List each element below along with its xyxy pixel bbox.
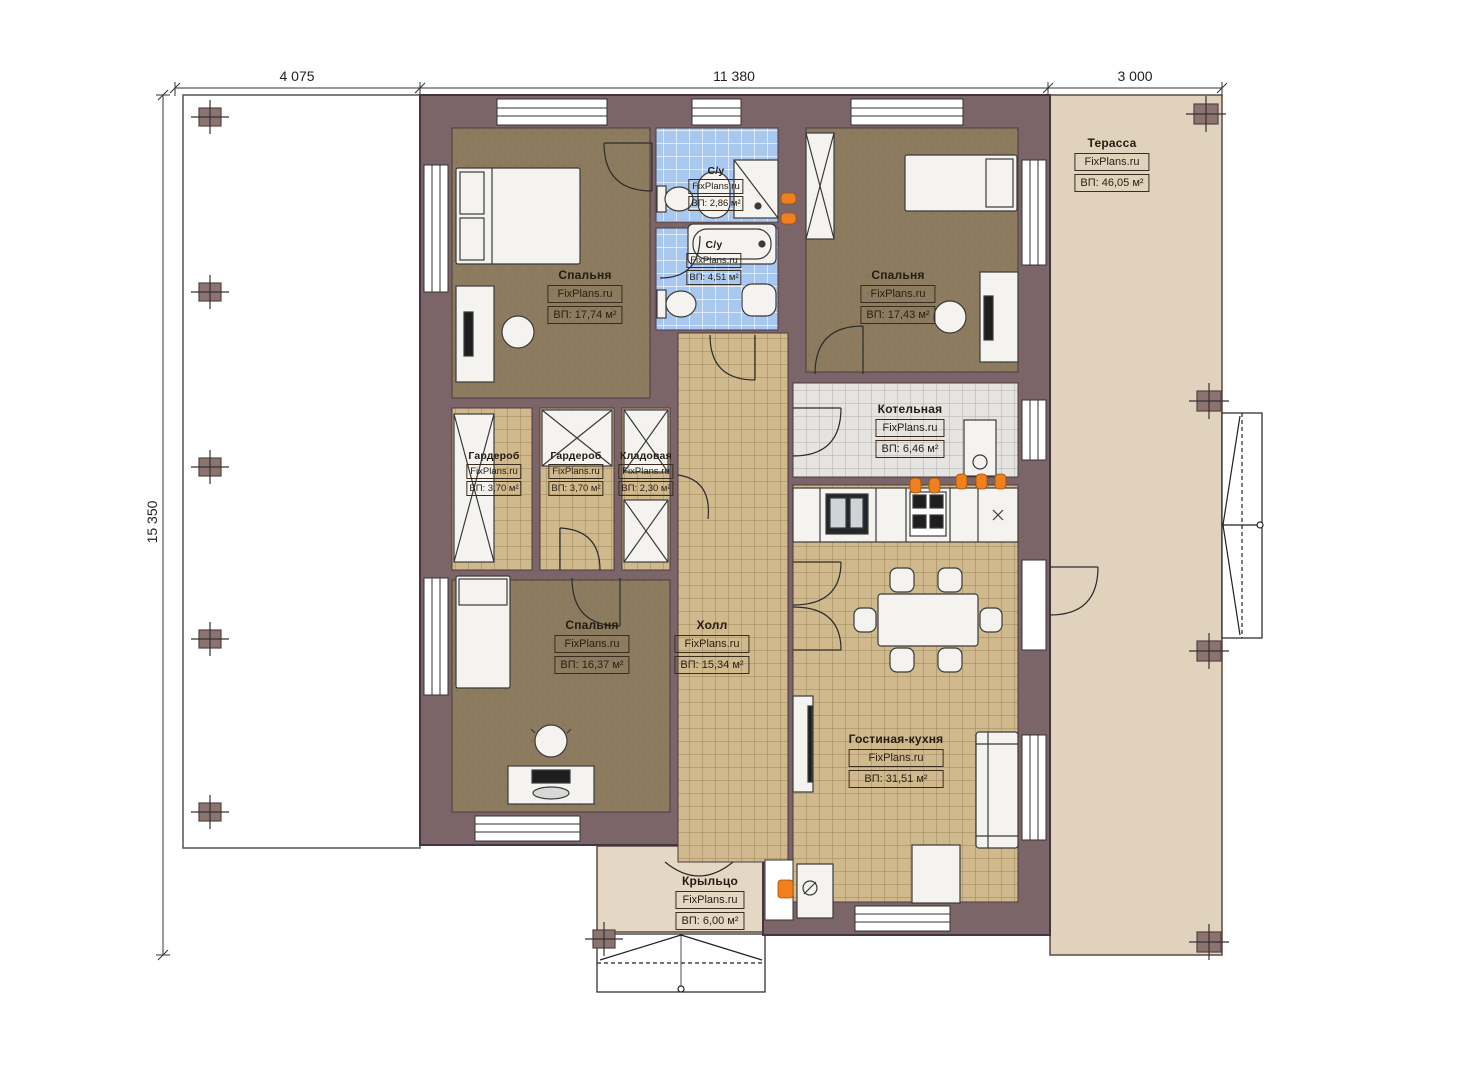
room-area: ВП: 2,30 м² [618,481,673,496]
watermark-brand: FixPlans.ru [849,749,944,767]
room-area: ВП: 2,86 м² [688,196,743,211]
room-name: Холл [674,618,749,632]
room-label-living-kitchen: Гостиная-кухня FixPlans.ru ВП: 31,51 м² [849,732,944,788]
watermark-brand: FixPlans.ru [675,891,744,909]
dimension-top-terrace: 3 000 [1117,68,1152,84]
double-bed [456,168,580,264]
coffee-table [912,845,960,903]
room-name: С/у [688,165,743,177]
floor-plan-page: 4 075 11 380 3 000 15 350 Спальня FixPla… [0,0,1473,1080]
room-label-bathroom-big: С/у FixPlans.ru ВП: 4,51 м² [686,239,741,285]
room-label-hall: Холл FixPlans.ru ВП: 15,34 м² [674,618,749,674]
terrace-steps [1222,413,1263,638]
room-name: Спальня [860,268,935,282]
room-name: Терасса [1074,136,1149,150]
room-name: Котельная [875,402,944,416]
dimension-left-height: 15 350 [144,501,160,544]
room-label-porch: Крыльцо FixPlans.ru ВП: 6,00 м² [675,874,744,930]
single-bed-bottom-left [456,576,510,688]
room-name: Спальня [547,268,622,282]
room-label-bedroom-top-right: Спальня FixPlans.ru ВП: 17,43 м² [860,268,935,324]
computer-desk [508,766,594,804]
room-area: ВП: 4,51 м² [686,270,741,285]
room-label-wardrobe-2: Гардероб FixPlans.ru ВП: 3,70 м² [548,450,603,496]
room-area: ВП: 6,00 м² [675,912,744,930]
room-name: Кладовая [618,450,673,462]
tv-stand [793,696,813,792]
room-name: Гардероб [466,450,521,462]
watermark-brand: FixPlans.ru [686,253,741,268]
floor-hall [678,333,788,862]
room-name: Крыльцо [675,874,744,888]
watermark-brand: FixPlans.ru [554,635,629,653]
room-name: Спальня [554,618,629,632]
room-label-storage: Кладовая FixPlans.ru ВП: 2,30 м² [618,450,673,496]
watermark-brand: FixPlans.ru [860,285,935,303]
watermark-brand: FixPlans.ru [1074,153,1149,171]
wardrobe-cabinet [806,133,834,239]
room-name: Гардероб [548,450,603,462]
room-area: ВП: 3,70 м² [548,481,603,496]
room-label-bedroom-top-left: Спальня FixPlans.ru ВП: 17,74 м² [547,268,622,324]
single-bed-top-right [905,155,1017,211]
kitchen-counter [793,488,1018,542]
watermark-brand: FixPlans.ru [618,464,673,479]
porch-steps [597,934,765,992]
room-label-wardrobe-1: Гардероб FixPlans.ru ВП: 3,70 м² [466,450,521,496]
room-area: ВП: 46,05 м² [1074,174,1149,192]
sofa [976,732,1018,848]
room-area: ВП: 16,37 м² [554,656,629,674]
watermark-brand: FixPlans.ru [548,464,603,479]
terrace-deck [1050,95,1222,955]
sink [742,284,776,316]
room-area: ВП: 15,34 м² [674,656,749,674]
watermark-brand: FixPlans.ru [466,464,521,479]
room-area: ВП: 17,43 м² [860,306,935,324]
entry-door [797,864,833,918]
room-label-boiler-room: Котельная FixPlans.ru ВП: 6,46 м² [875,402,944,458]
watermark-brand: FixPlans.ru [688,179,743,194]
watermark-brand: FixPlans.ru [547,285,622,303]
room-area: ВП: 6,46 м² [875,440,944,458]
room-area: ВП: 17,74 м² [547,306,622,324]
room-label-terrace: Терасса FixPlans.ru ВП: 46,05 м² [1074,136,1149,192]
room-area: ВП: 31,51 м² [849,770,944,788]
dimension-top-carport: 4 075 [279,68,314,84]
watermark-brand: FixPlans.ru [674,635,749,653]
room-name: С/у [686,239,741,251]
room-area: ВП: 3,70 м² [466,481,521,496]
boiler-unit [964,420,996,476]
room-label-bathroom-small: С/у FixPlans.ru ВП: 2,86 м² [688,165,743,211]
room-name: Гостиная-кухня [849,732,944,746]
room-label-bedroom-bottom-left: Спальня FixPlans.ru ВП: 16,37 м² [554,618,629,674]
toilet-2 [657,290,696,318]
dimension-top-house: 11 380 [713,68,755,84]
watermark-brand: FixPlans.ru [875,419,944,437]
